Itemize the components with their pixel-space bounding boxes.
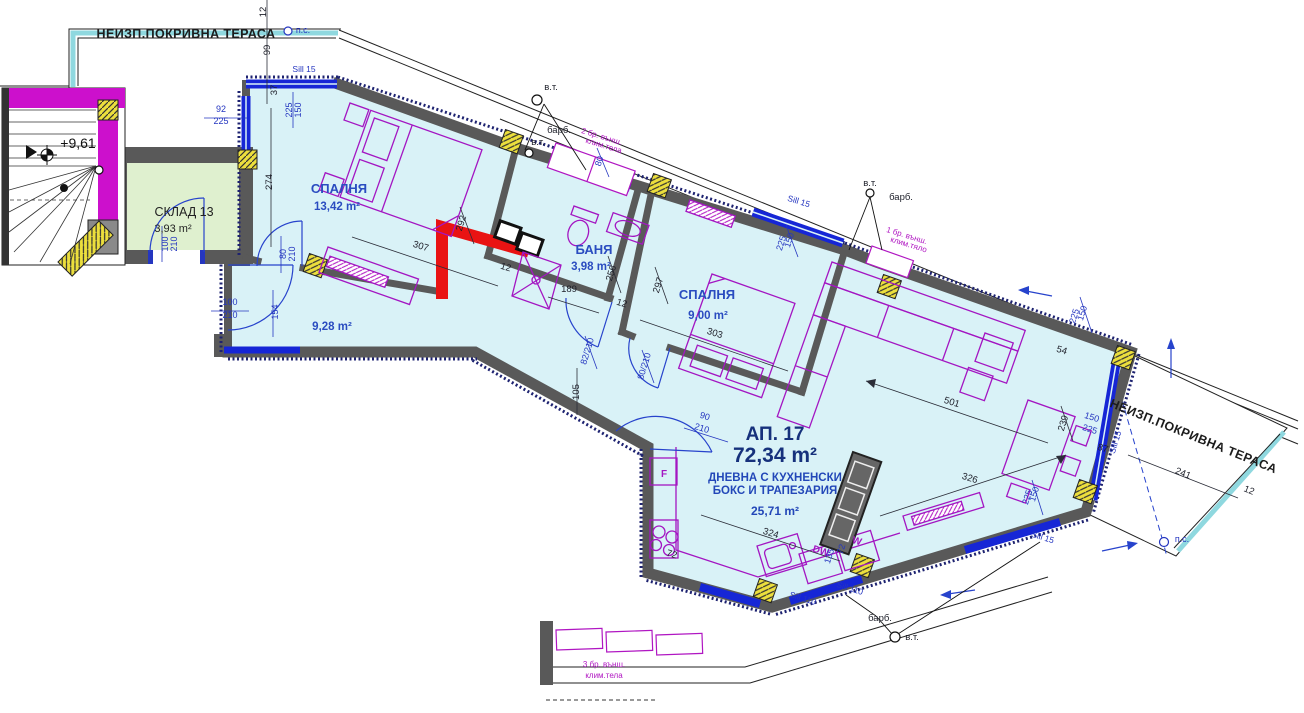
barb-label: барб.	[889, 192, 913, 203]
room-area-living: 25,71 m²	[751, 504, 799, 518]
dim-label: 150	[293, 102, 303, 117]
dim-label: 210	[169, 236, 179, 251]
room-label-bedroom2: СПАЛНЯ	[679, 287, 735, 302]
pc-drain-symbol	[1160, 538, 1169, 547]
room-label-bath: БАНЯ	[576, 242, 613, 257]
terrace-top-label: НЕИЗП.ПОКРИВНА ТЕРАСА	[97, 27, 276, 41]
sill-label: Sill 15	[292, 64, 315, 74]
dim-label: 100	[222, 297, 237, 307]
floor-plan-page: НЕИЗП.ПОКРИВНА ТЕРАСАп.с.1299Sill 159222…	[0, 0, 1304, 713]
barb-label: барб.	[868, 613, 892, 624]
pc-label: п.с.	[1175, 534, 1189, 544]
apartment-area: 72,34 m²	[733, 444, 817, 467]
dim-label: 37	[269, 85, 280, 96]
dim-label: 92	[216, 104, 226, 114]
barb-label: барб.	[547, 125, 571, 136]
dim-label: 274	[264, 174, 275, 190]
room-area-bedroom1: 13,42 m²	[314, 201, 360, 213]
dim-label: 210	[287, 246, 297, 261]
pc-label: п.с.	[296, 25, 310, 35]
vt-label: в.т.	[544, 82, 558, 93]
vt-label: в.т.	[531, 137, 545, 148]
apartment-number: АП. 17	[746, 424, 805, 445]
dim-label: 225	[284, 102, 294, 117]
dim-label: 154	[270, 304, 280, 319]
room-area-bedroom2: 9,00 m²	[688, 310, 728, 322]
dim-label: 12	[258, 7, 269, 18]
room-area-storage: 3,93 m²	[154, 223, 192, 235]
room-label-storage: СКЛАД 13	[154, 205, 213, 219]
dim-label: 99	[262, 45, 273, 56]
dim-label: 225	[213, 116, 228, 126]
room-area-hall: 9,28 m²	[312, 321, 352, 333]
vt-label: в.т.	[863, 178, 877, 189]
vt-label: в.т.	[905, 632, 919, 643]
dim-label: 105	[571, 384, 582, 400]
ac-note: клим.тела	[585, 671, 623, 680]
dim-label: 210	[222, 310, 237, 320]
floor-plan-drawing: НЕИЗП.ПОКРИВНА ТЕРАСАп.с.1299Sill 159222…	[0, 0, 1304, 713]
room-label-living2: БОКС И ТРАПЕЗАРИЯ	[713, 485, 838, 497]
room-label-living: ДНЕВНА С КУХНЕНСКИ	[708, 472, 842, 484]
ac-note: 3 бр. външ.	[583, 660, 625, 669]
level-mark: +9,61	[60, 135, 96, 151]
dim-label: 189	[561, 284, 577, 295]
room-area-bath: 3,98 m²	[571, 261, 611, 273]
room-label-bedroom1: СПАЛНЯ	[311, 181, 367, 196]
fridge-label: F	[661, 469, 667, 480]
